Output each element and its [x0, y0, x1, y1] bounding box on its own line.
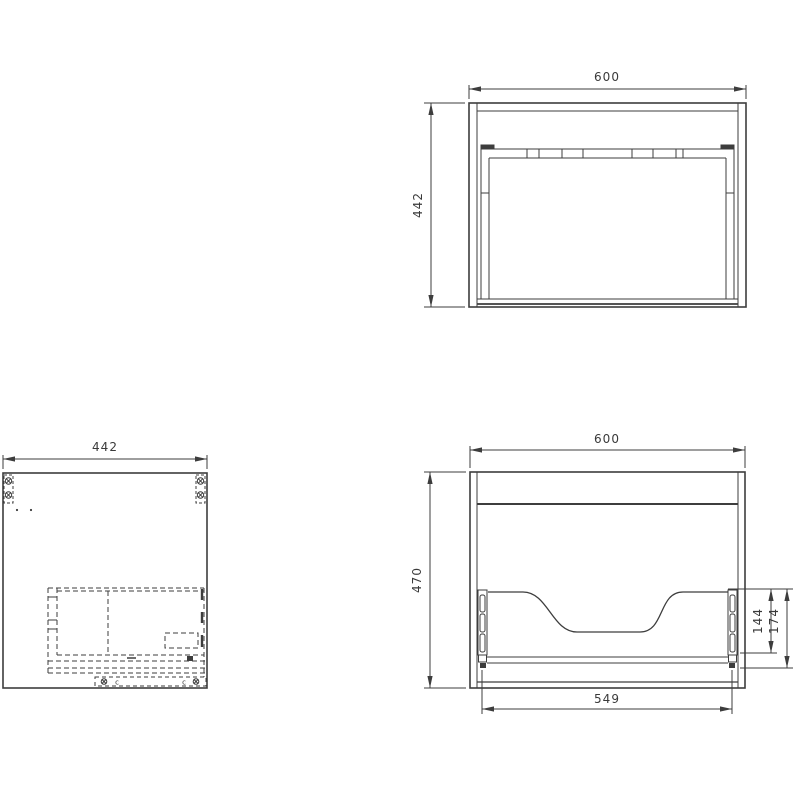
- dim-label-top-depth: 442: [411, 192, 425, 218]
- dim-label-top-width: 600: [594, 70, 620, 84]
- hidden-fitting-box: [165, 633, 198, 648]
- screw-icon: [101, 679, 107, 685]
- screw-icon: [5, 478, 11, 484]
- top-view-drawer-box: [481, 145, 734, 299]
- screw-icon: [197, 478, 203, 484]
- dim-label-front-height: 470: [410, 567, 424, 593]
- screw-icon: [197, 492, 203, 498]
- screw-fitting-top-left: [4, 475, 13, 503]
- drawer-rail-segments: [527, 149, 683, 158]
- dim-label-side-depth: 442: [92, 440, 118, 454]
- corner-bracket-right: [721, 145, 734, 149]
- drawer-runner-right: [728, 590, 737, 668]
- front-view: 600 470 549 144 174: [410, 432, 793, 714]
- cabinet-drawing-svg: 600 442 442: [0, 0, 800, 800]
- front-view-dim-height: 470: [410, 472, 466, 688]
- dim-label-rail-offset: 174: [767, 608, 781, 634]
- dim-label-runner-length: 549: [594, 692, 620, 706]
- front-view-dim-width: 600: [470, 432, 745, 468]
- bottom-connector-strip: c c: [95, 677, 206, 687]
- screw-icon: [5, 492, 11, 498]
- dowel-dot: [30, 509, 32, 511]
- top-view: 600 442: [411, 70, 746, 307]
- side-view: 442: [3, 440, 207, 688]
- top-view-dim-depth: 442: [411, 103, 465, 307]
- side-view-dim-depth: 442: [3, 440, 207, 469]
- screw-icon: [193, 679, 199, 685]
- dim-label-front-width: 600: [594, 432, 620, 446]
- top-view-dim-width: 600: [469, 70, 746, 99]
- front-view-dim-runner: 549: [482, 670, 732, 714]
- corner-bracket-left: [481, 145, 494, 149]
- drawer-back-cutout-profile: [488, 592, 728, 632]
- drawing-canvas: 600 442 442: [0, 0, 800, 800]
- drawer-runner-left: [478, 590, 487, 668]
- screw-fitting-top-right: [196, 475, 205, 503]
- dowel-dot: [16, 509, 18, 511]
- hidden-drawer-assembly: [48, 588, 206, 677]
- top-view-carcass: [469, 103, 746, 307]
- cam-fitting-label-left: c: [115, 679, 119, 687]
- bottom-fitting-block: [187, 656, 193, 661]
- side-view-panel: [3, 473, 207, 688]
- drawer-bottom-rail: [487, 657, 728, 663]
- cam-fitting-label-right: c: [182, 679, 186, 687]
- dim-label-cutout-height: 144: [751, 608, 765, 634]
- front-view-carcass: [470, 472, 745, 688]
